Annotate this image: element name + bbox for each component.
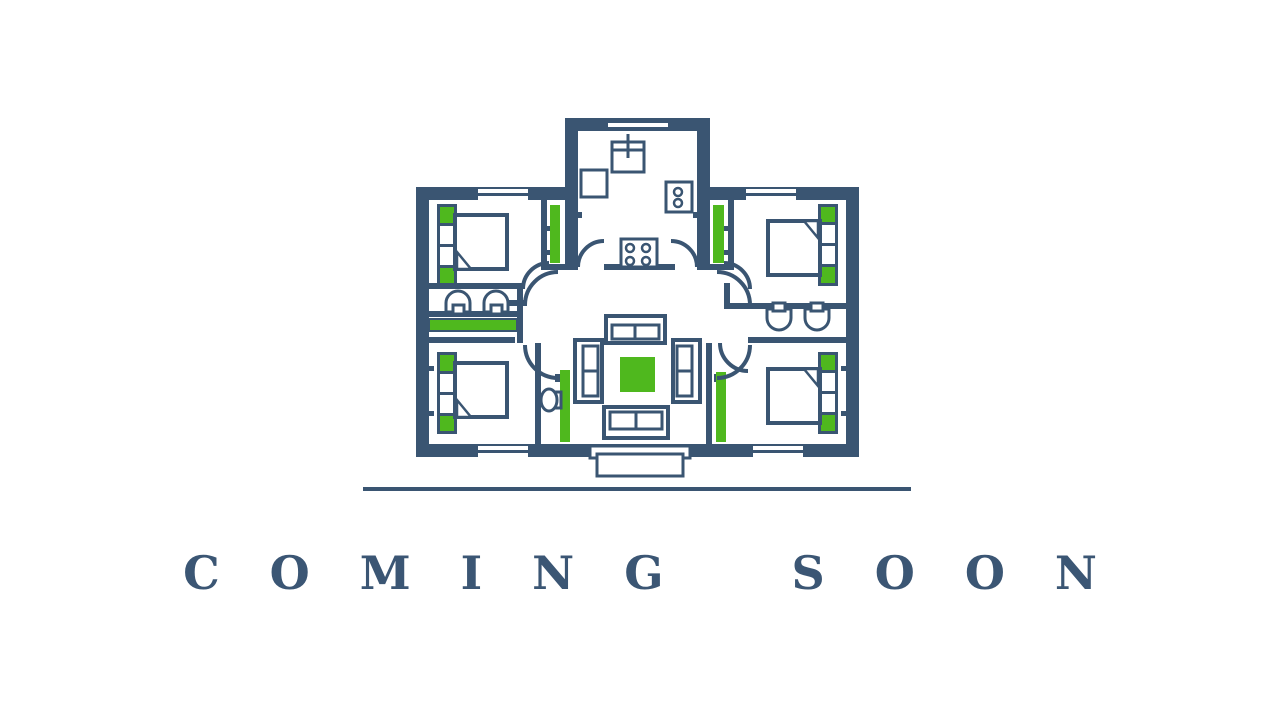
floor-plan-illustration <box>0 0 1280 720</box>
sofa-top <box>606 316 665 343</box>
bathtub <box>429 319 517 331</box>
coming-soon-page: COMING SOON <box>0 0 1280 720</box>
divider-line <box>363 487 911 491</box>
coming-soon-title: COMING SOON <box>0 538 1280 608</box>
wardrobe-bottom-right <box>716 372 726 442</box>
appliance-icon <box>666 182 692 212</box>
cabinet <box>581 170 607 197</box>
armchair-right <box>673 340 700 402</box>
armchair-left <box>575 340 602 402</box>
wardrobe-top-left <box>550 205 560 263</box>
stove-icon <box>621 239 657 267</box>
wardrobe-top-right <box>713 205 724 263</box>
sofa-bottom <box>604 407 668 438</box>
wc <box>541 389 561 411</box>
toilet-icon <box>541 389 557 411</box>
coffee-table <box>620 357 655 392</box>
entrance-porch <box>590 446 690 476</box>
